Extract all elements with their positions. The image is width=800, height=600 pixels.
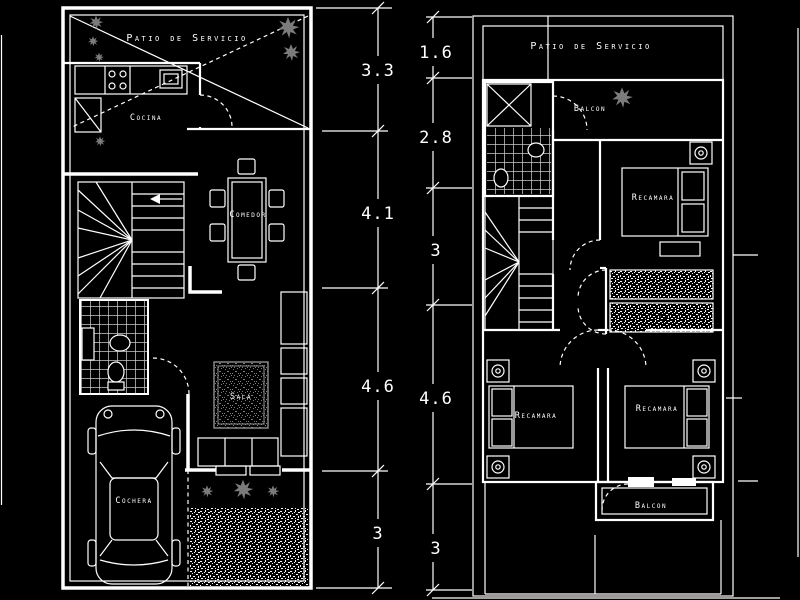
nightstand: [690, 142, 712, 164]
toilet: [108, 362, 124, 382]
bed: [625, 386, 709, 448]
garage-area: Cochera: [88, 406, 180, 584]
dining-set: Comedor: [210, 159, 284, 280]
upper-patio-label: Patio de Servicio: [530, 41, 651, 52]
pillow: [492, 419, 512, 446]
garden-area: [190, 508, 308, 586]
dimension-chain-right: 1.6 2.8 3 4.6 3: [419, 11, 472, 596]
upper-floor-plan: Patio de Servicio Balcon: [473, 16, 758, 596]
dim-right-2: 2.8: [419, 128, 453, 148]
plant-icon: [95, 53, 104, 62]
chair: [238, 159, 255, 174]
dimension-chain-left: 3.3 4.1 4.6 3: [316, 2, 395, 594]
dining-table: [228, 178, 266, 262]
chair: [210, 224, 225, 241]
balcony-lower: Balcon: [596, 477, 713, 520]
plant-icon: [95, 136, 105, 146]
plant-icon: [278, 17, 299, 38]
shelving-unit: [281, 292, 307, 344]
balcon-lower-label: Balcon: [635, 501, 667, 511]
shelving-unit: [281, 378, 307, 404]
dim-right-1: 1.6: [419, 43, 453, 63]
sink: [528, 143, 544, 157]
bathroom-door-arc: [153, 358, 189, 394]
stairs-upper: [485, 196, 553, 330]
entry-step: [216, 466, 246, 475]
nightstand: [487, 360, 509, 382]
closet-top-label: CL: [658, 281, 669, 290]
pillow: [682, 172, 704, 200]
pillow: [492, 389, 512, 416]
sink: [110, 335, 130, 351]
recamara-top-label: Recamara: [632, 193, 674, 203]
recamara-right-label: Recamara: [636, 404, 678, 414]
chair: [238, 265, 255, 280]
partition-wall: [190, 266, 222, 292]
dim-left-2: 4.1: [361, 204, 395, 224]
sala-label: Sala: [230, 392, 252, 402]
stairs-ground: [78, 182, 184, 298]
closet-bottom-label: CL: [658, 314, 669, 323]
recamara-left-label: Recamara: [515, 411, 557, 421]
floor-plan-drawing: Patio de Servicio Cocina: [0, 0, 800, 600]
patio-servicio-area: Patio de Servicio: [70, 16, 308, 147]
kitchen-door-arc: [200, 95, 232, 127]
lower-roof-section: [485, 482, 721, 594]
right-side-ticks: [726, 255, 758, 481]
plant-icon: [283, 44, 300, 61]
closets: CL CL: [578, 268, 713, 334]
pillow: [687, 419, 707, 446]
pillow: [682, 204, 704, 232]
nightstand: [487, 456, 509, 478]
chair: [269, 224, 284, 241]
kitchen-sink: [160, 70, 182, 88]
entry-step: [250, 466, 280, 475]
nightstand: [693, 456, 715, 478]
bedroom-top: Recamara: [570, 140, 712, 270]
sofa: [198, 438, 278, 466]
car-wheel: [88, 540, 96, 566]
plant-icon: [234, 480, 254, 500]
shower-tray: [82, 328, 94, 360]
bedroom-left: Recamara: [487, 360, 573, 478]
shelving-unit: [281, 408, 307, 456]
car-wheel: [88, 428, 96, 454]
pillow: [687, 389, 707, 416]
bedroom-right: Recamara: [625, 360, 715, 478]
cochera-label: Cochera: [115, 496, 152, 506]
living-room-area: Sala: [198, 292, 307, 466]
shelving-unit: [281, 348, 307, 374]
balcony-door-threshold: [672, 478, 696, 486]
bedroom-door-arc: [570, 240, 600, 270]
car-wheel: [172, 428, 180, 454]
dim-right-5: 3: [430, 539, 441, 559]
bedroom-door-arc: [560, 330, 598, 368]
plant-icon: [201, 485, 213, 497]
bathroom-ground: [80, 300, 189, 394]
cocina-label: Cocina: [130, 113, 162, 123]
kitchen-area: Cocina: [63, 63, 311, 132]
nightstand: [693, 360, 715, 382]
bedroom-door-arc: [608, 330, 646, 368]
plant-icon: [267, 485, 279, 497]
plant-icon: [612, 87, 632, 107]
dim-left-1: 3.3: [361, 61, 395, 81]
toilet: [494, 169, 508, 187]
chair: [269, 190, 284, 207]
balcony-door-threshold: [628, 477, 654, 487]
dim-right-3: 3: [430, 241, 441, 261]
comedor-label: Comedor: [229, 210, 266, 220]
balcon-upper-label: Balcon: [574, 104, 606, 114]
plant-icon: [88, 36, 98, 46]
dresser: [660, 242, 700, 256]
upper-patio-area: [483, 26, 723, 80]
car-wheel: [172, 540, 180, 566]
ground-floor-plan: Patio de Servicio Cocina: [63, 8, 311, 588]
plant-icon: [90, 16, 104, 30]
chair: [210, 190, 225, 207]
cad-canvas: Patio de Servicio Cocina: [0, 0, 800, 600]
dim-right-4: 4.6: [419, 389, 453, 409]
dim-left-3: 4.6: [361, 377, 395, 397]
dim-left-4: 3: [372, 524, 383, 544]
patio-servicio-label: Patio de Servicio: [126, 33, 247, 44]
